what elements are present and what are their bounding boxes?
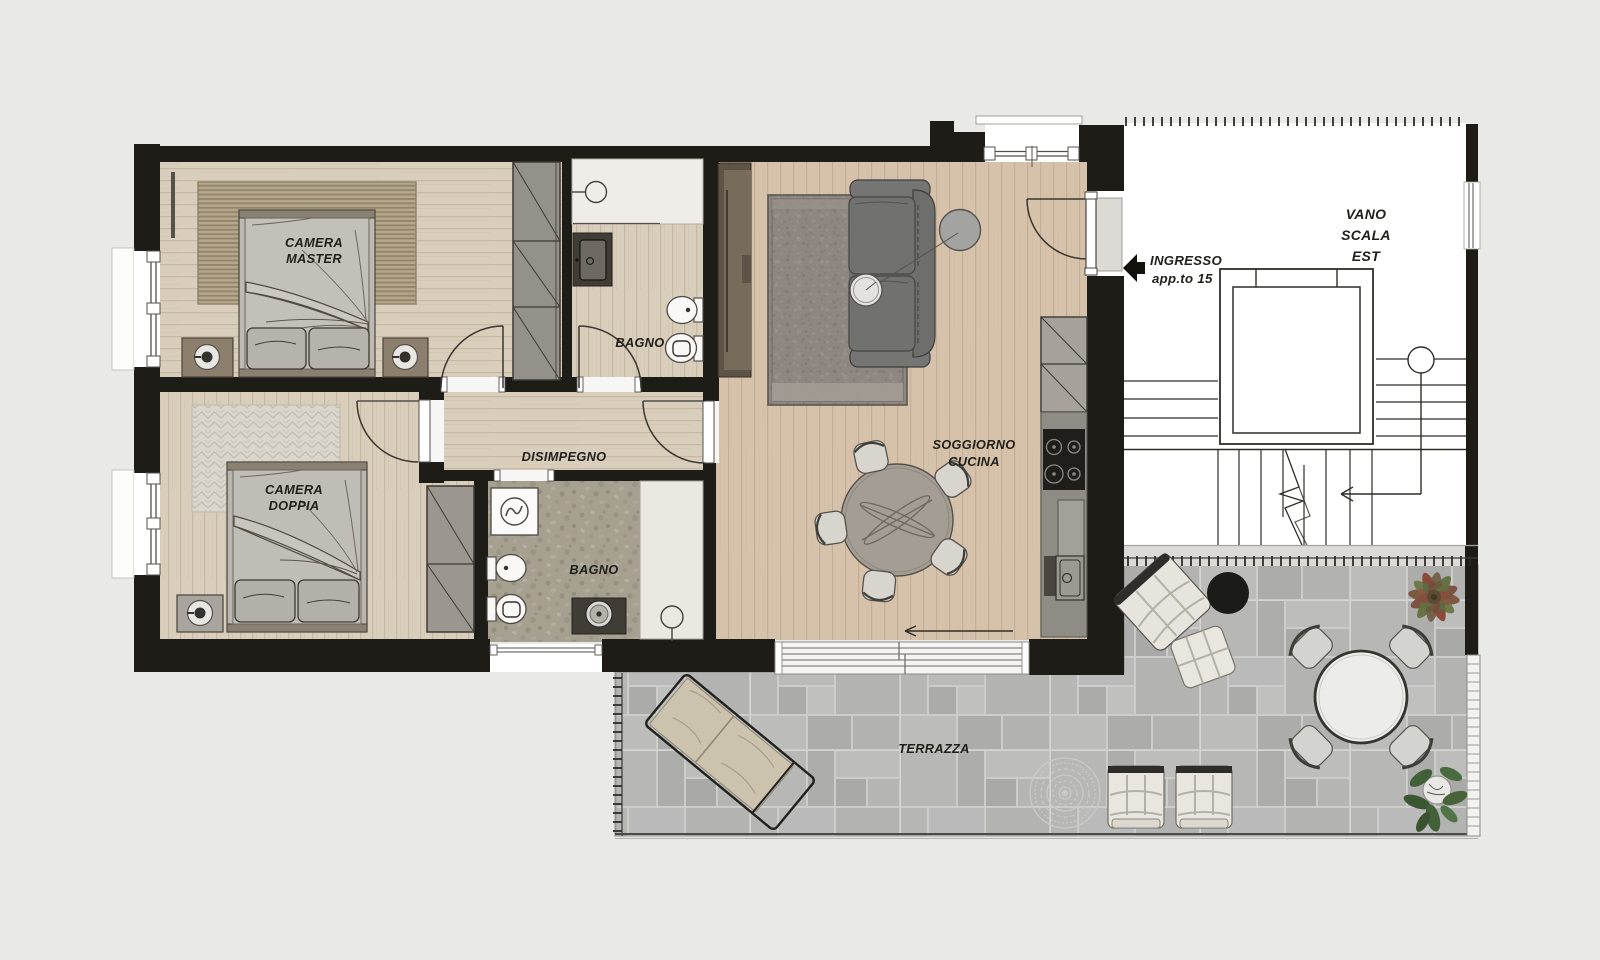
svg-text:VANO: VANO bbox=[1346, 206, 1387, 222]
svg-text:CUCINA: CUCINA bbox=[948, 454, 1000, 469]
svg-text:BAGNO: BAGNO bbox=[569, 562, 618, 577]
svg-text:app.to 15: app.to 15 bbox=[1152, 271, 1213, 286]
svg-text:CAMERA: CAMERA bbox=[285, 235, 343, 250]
svg-text:TERRAZZA: TERRAZZA bbox=[898, 741, 969, 756]
svg-text:SCALA: SCALA bbox=[1341, 227, 1391, 243]
svg-text:CAMERA: CAMERA bbox=[265, 482, 323, 497]
svg-text:DOPPIA: DOPPIA bbox=[269, 498, 320, 513]
svg-text:SOGGIORNO: SOGGIORNO bbox=[932, 437, 1015, 452]
svg-text:INGRESSO: INGRESSO bbox=[1150, 253, 1222, 268]
svg-text:BAGNO: BAGNO bbox=[615, 335, 664, 350]
svg-text:MASTER: MASTER bbox=[286, 251, 342, 266]
svg-text:DISIMPEGNO: DISIMPEGNO bbox=[522, 449, 607, 464]
svg-text:EST: EST bbox=[1352, 248, 1381, 264]
